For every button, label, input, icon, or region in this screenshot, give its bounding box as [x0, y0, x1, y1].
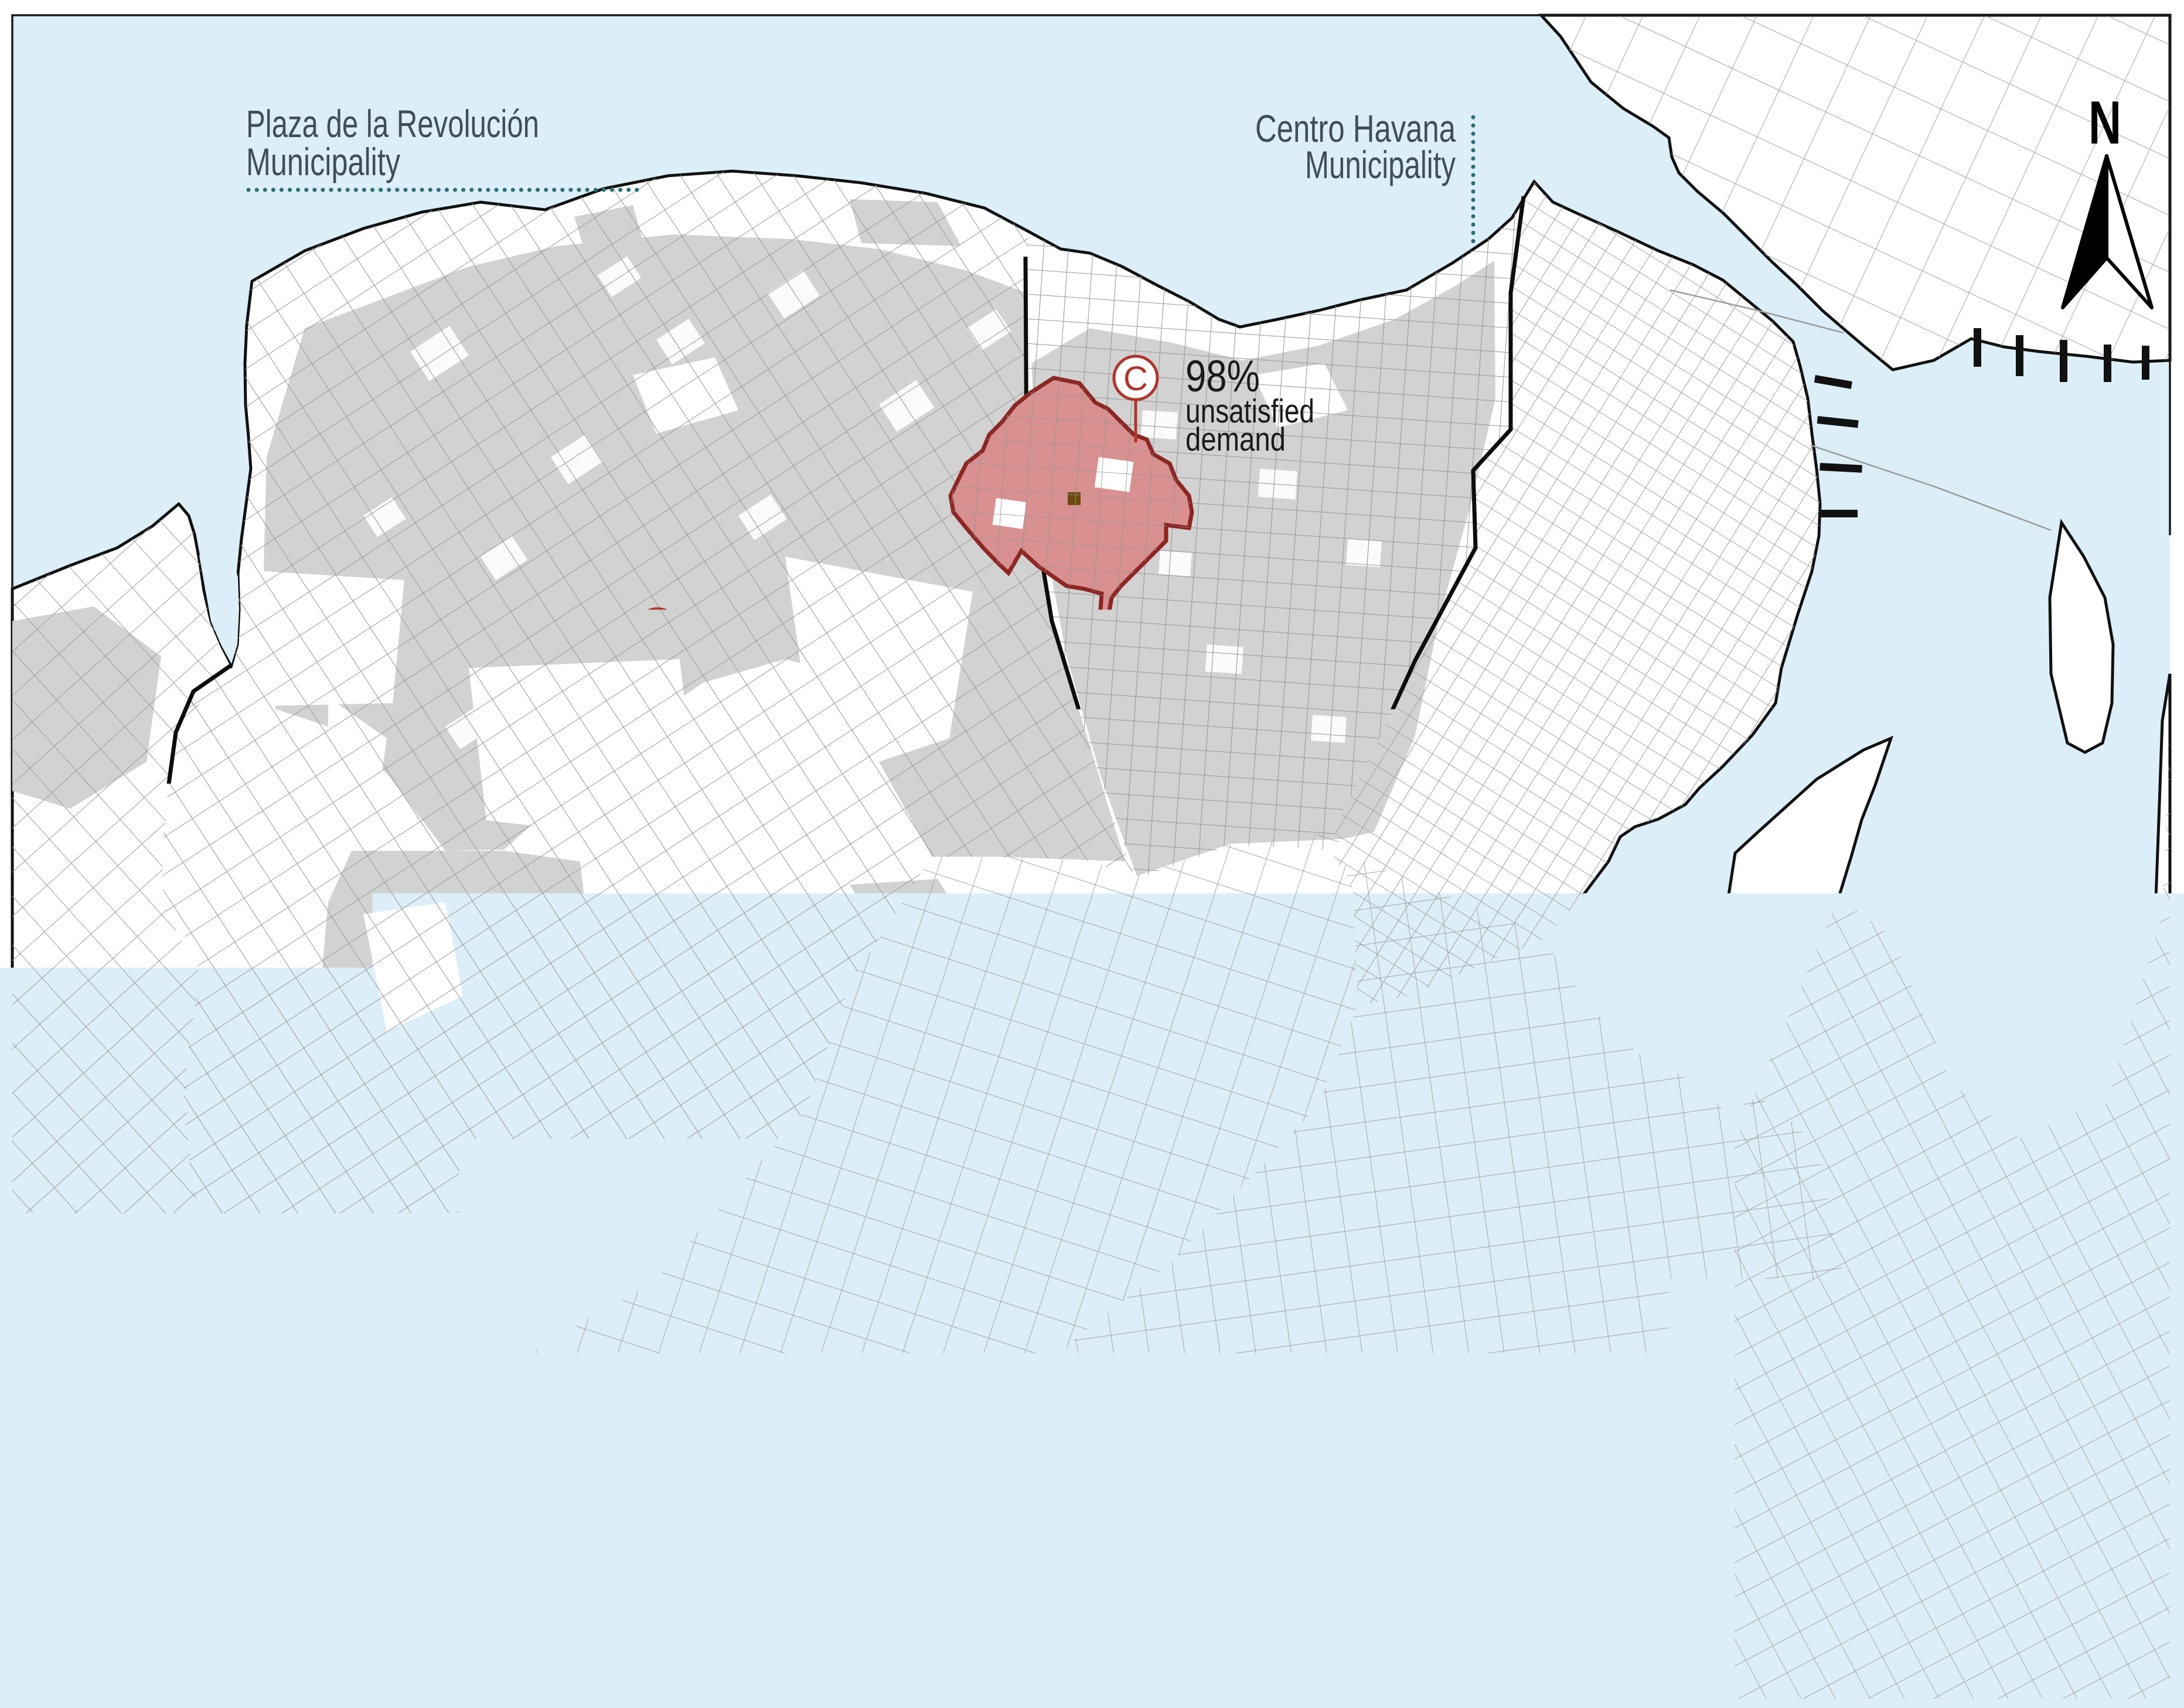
svg-text:Municipality: Municipality — [246, 140, 400, 183]
svg-text:(Food supply providing areas): (Food supply providing areas) — [1382, 1395, 1846, 1435]
svg-text:N: N — [2088, 89, 2121, 157]
svg-text:A: A — [646, 612, 669, 650]
svg-text:1: 1 — [738, 1581, 761, 1627]
svg-text:0: 0 — [501, 1581, 524, 1627]
svg-text:(Food supply demanding areas): (Food supply demanding areas) — [1382, 1264, 1880, 1304]
svg-text:Plaza de la Revolución: Plaza de la Revolución — [246, 102, 539, 145]
svg-text:C: C — [1123, 360, 1148, 398]
svg-text:2 km: 2 km — [988, 1581, 1082, 1627]
svg-text:demand: demand — [373, 1095, 468, 1132]
svg-text:demand: demand — [1185, 421, 1286, 458]
svg-text:Food Supply Potential Benefici: Food Supply Potential Beneficiaries — [1382, 1573, 1937, 1613]
svg-text:Residential areas: Residential areas — [1382, 1215, 1668, 1255]
svg-text:Organoponics: Organoponics — [1382, 1346, 1602, 1386]
svg-text:Municipality: Municipality — [1305, 143, 1456, 186]
svg-text:demand: demand — [696, 675, 795, 712]
svg-text:53%: 53% — [696, 603, 770, 653]
svg-text:B: B — [328, 1028, 351, 1066]
svg-text:62%: 62% — [373, 1022, 448, 1072]
svg-text:Benefiting Areas: Benefiting Areas — [1382, 1478, 1641, 1518]
